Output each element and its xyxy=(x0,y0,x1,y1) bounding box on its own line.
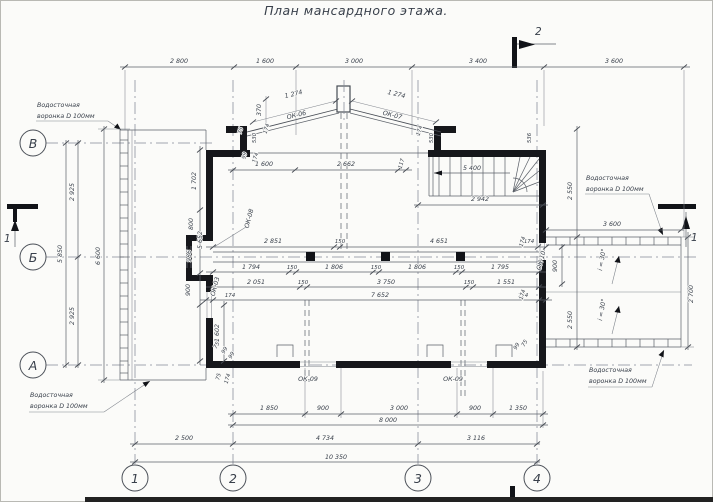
dim-label: 370 xyxy=(256,104,263,116)
dim-label: 2 700 xyxy=(688,285,695,303)
drain-note: воронка D 100мм xyxy=(586,186,644,193)
dim-row-upper: 1 600 2 662 117 5 400 2 942 xyxy=(228,157,548,207)
dim-label: 2 550 xyxy=(567,311,574,329)
dim-label: 174 xyxy=(519,235,528,247)
dim-label: 1 806 xyxy=(408,264,426,271)
photo-edge-strip xyxy=(85,497,713,502)
dim-label: 1 600 xyxy=(256,58,274,65)
dim-label: 3 600 xyxy=(603,221,621,228)
dim-label: 800 xyxy=(188,218,195,230)
dim-label: 117 xyxy=(398,157,407,169)
dim-label: 150 xyxy=(298,280,309,286)
axis-label: 3 xyxy=(414,471,422,486)
dim-label: 1 794 xyxy=(242,264,260,271)
dim-label: 1 850 xyxy=(260,405,278,412)
dim-label: 900 xyxy=(552,260,559,272)
stair-mark: 5 400 xyxy=(463,165,481,172)
dim-label: 1 806 xyxy=(325,264,343,271)
section-mark-bottom-bar xyxy=(510,486,515,497)
drain-note: воронка D 100мм xyxy=(30,403,88,410)
window-mark: ОК-08 xyxy=(244,208,256,229)
dim-label: 1 602 xyxy=(214,324,221,342)
dim-label: 3 116 xyxy=(467,435,485,442)
dim-label: 1 350 xyxy=(509,405,527,412)
dormer-mark xyxy=(427,345,443,357)
dim-label: 536 xyxy=(527,132,533,143)
drain-note: воронка D 100мм xyxy=(589,378,647,385)
axis-label: 1 xyxy=(131,471,139,486)
dim-label: 1 795 xyxy=(491,264,509,271)
drain-note: Водосточная xyxy=(586,175,629,182)
architectural-drawing-screenshot: План мансардного этажа. В Б А 1 2 3 4 1 … xyxy=(0,0,713,502)
dim-chain-top: 2 800 1 600 3 000 3 400 3 600 xyxy=(120,58,690,237)
dim-label: 2 500 xyxy=(175,435,193,442)
dim-label: 150 xyxy=(454,265,465,271)
dim-label: 1 274 xyxy=(284,89,303,100)
window-mark: ОК-09 xyxy=(443,376,463,383)
dim-label: 1 600 xyxy=(255,161,273,168)
dim-rows-middle: 5 652 2 851 150 4 651 174 1 794 150 1 80… xyxy=(197,231,552,303)
dim-label: 2 942 xyxy=(471,196,489,203)
dim-label: 3 000 xyxy=(390,405,408,412)
dim-label: 150 xyxy=(335,239,346,245)
axis-label: 4 xyxy=(533,471,541,486)
dim-label: 75 xyxy=(521,339,530,348)
staircase xyxy=(429,157,539,196)
dim-label: 986 xyxy=(186,250,193,262)
axis-label: 2 xyxy=(229,471,237,486)
dim-label: 900 xyxy=(317,405,329,412)
slope-note: i = 30° xyxy=(596,298,608,321)
dim-label: 5 850 xyxy=(57,245,64,263)
dim-chains-bottom: 1 850 900 3 000 900 1 350 8 000 2 500 4 … xyxy=(130,368,548,465)
window-mark: ОК-09 xyxy=(298,376,318,383)
section-number: 2 xyxy=(535,26,542,38)
dim-label: 530 xyxy=(252,132,258,143)
column xyxy=(381,252,390,261)
dim-label: 5 652 xyxy=(197,231,204,249)
dim-label: 150 xyxy=(464,280,475,286)
dim-label: 150 xyxy=(371,265,382,271)
dim-label: 7 652 xyxy=(371,292,389,299)
section-mark-top-bar xyxy=(512,37,517,68)
axis-label: Б xyxy=(29,250,38,265)
right-terrace: i = 30° i = 30° xyxy=(546,237,681,347)
dim-label: 900 xyxy=(185,284,192,296)
dim-label: 75 xyxy=(215,372,223,381)
dim-label: 3 600 xyxy=(605,58,623,65)
stair-treads xyxy=(439,157,505,196)
section-number: 1 xyxy=(4,233,11,245)
dim-label: 174 xyxy=(224,372,233,384)
drain-note: Водосточная xyxy=(30,392,73,399)
dim-label: 3 000 xyxy=(345,58,363,65)
stair-winders xyxy=(513,157,539,192)
dim-label: 3 400 xyxy=(469,58,487,65)
drain-note: воронка D 100мм xyxy=(37,113,95,120)
drain-note: Водосточная xyxy=(589,367,632,374)
dim-label: 174 xyxy=(263,122,272,134)
dim-label: 530 xyxy=(429,132,435,143)
dim-label: 10 350 xyxy=(325,454,347,461)
window-openings xyxy=(187,243,545,367)
parapet-hatch xyxy=(120,140,128,373)
dormer-mark xyxy=(496,345,512,357)
axis-label: В xyxy=(29,136,38,151)
dim-label: 2 550 xyxy=(567,182,574,200)
axis-grid: В Б А 1 2 3 4 xyxy=(20,80,698,491)
dim-label: 2 800 xyxy=(170,58,188,65)
dim-label: 2 662 xyxy=(337,161,355,168)
axis-label: А xyxy=(28,358,38,373)
left-terrace xyxy=(120,130,206,380)
column xyxy=(306,252,315,261)
dim-label: 3 750 xyxy=(377,279,395,286)
dim-label: 150 xyxy=(287,265,298,271)
dim-label: 2 925 xyxy=(69,183,76,201)
page-title: План мансардного этажа. xyxy=(264,3,448,18)
dim-label: 6 600 xyxy=(95,247,102,265)
dim-label: 1 274 xyxy=(387,89,406,100)
dim-label: 2 851 xyxy=(264,238,282,245)
floor-plan-canvas: План мансардного этажа. В Б А 1 2 3 4 1 … xyxy=(0,0,713,502)
section-number: 1 xyxy=(691,232,698,244)
dormer-mark xyxy=(277,345,293,357)
dim-label: 4 734 xyxy=(316,435,334,442)
dim-label: 8 000 xyxy=(379,417,397,424)
drain-note: Водосточная xyxy=(37,102,80,109)
dim-label: 174 xyxy=(225,293,236,299)
dim-lines-left: 5 850 2 925 2 925 6 600 xyxy=(57,126,130,383)
dim-label: 99 xyxy=(228,351,237,360)
dim-label: 2 925 xyxy=(69,307,76,325)
dim-label: 1 551 xyxy=(497,279,515,286)
section-mark-left-bar xyxy=(7,204,38,209)
dim-label: 99 xyxy=(221,346,230,355)
dim-label: 2 051 xyxy=(247,279,265,286)
section-markers: 1 1 2 xyxy=(4,26,698,497)
dim-label: 99 xyxy=(513,342,522,351)
section-mark-right-bar xyxy=(658,204,696,209)
slope-note: i = 30° xyxy=(596,248,608,271)
dim-label: 1 702 xyxy=(191,172,198,190)
dim-label: 4 651 xyxy=(430,238,448,245)
column xyxy=(456,252,465,261)
dim-label: 900 xyxy=(469,405,481,412)
